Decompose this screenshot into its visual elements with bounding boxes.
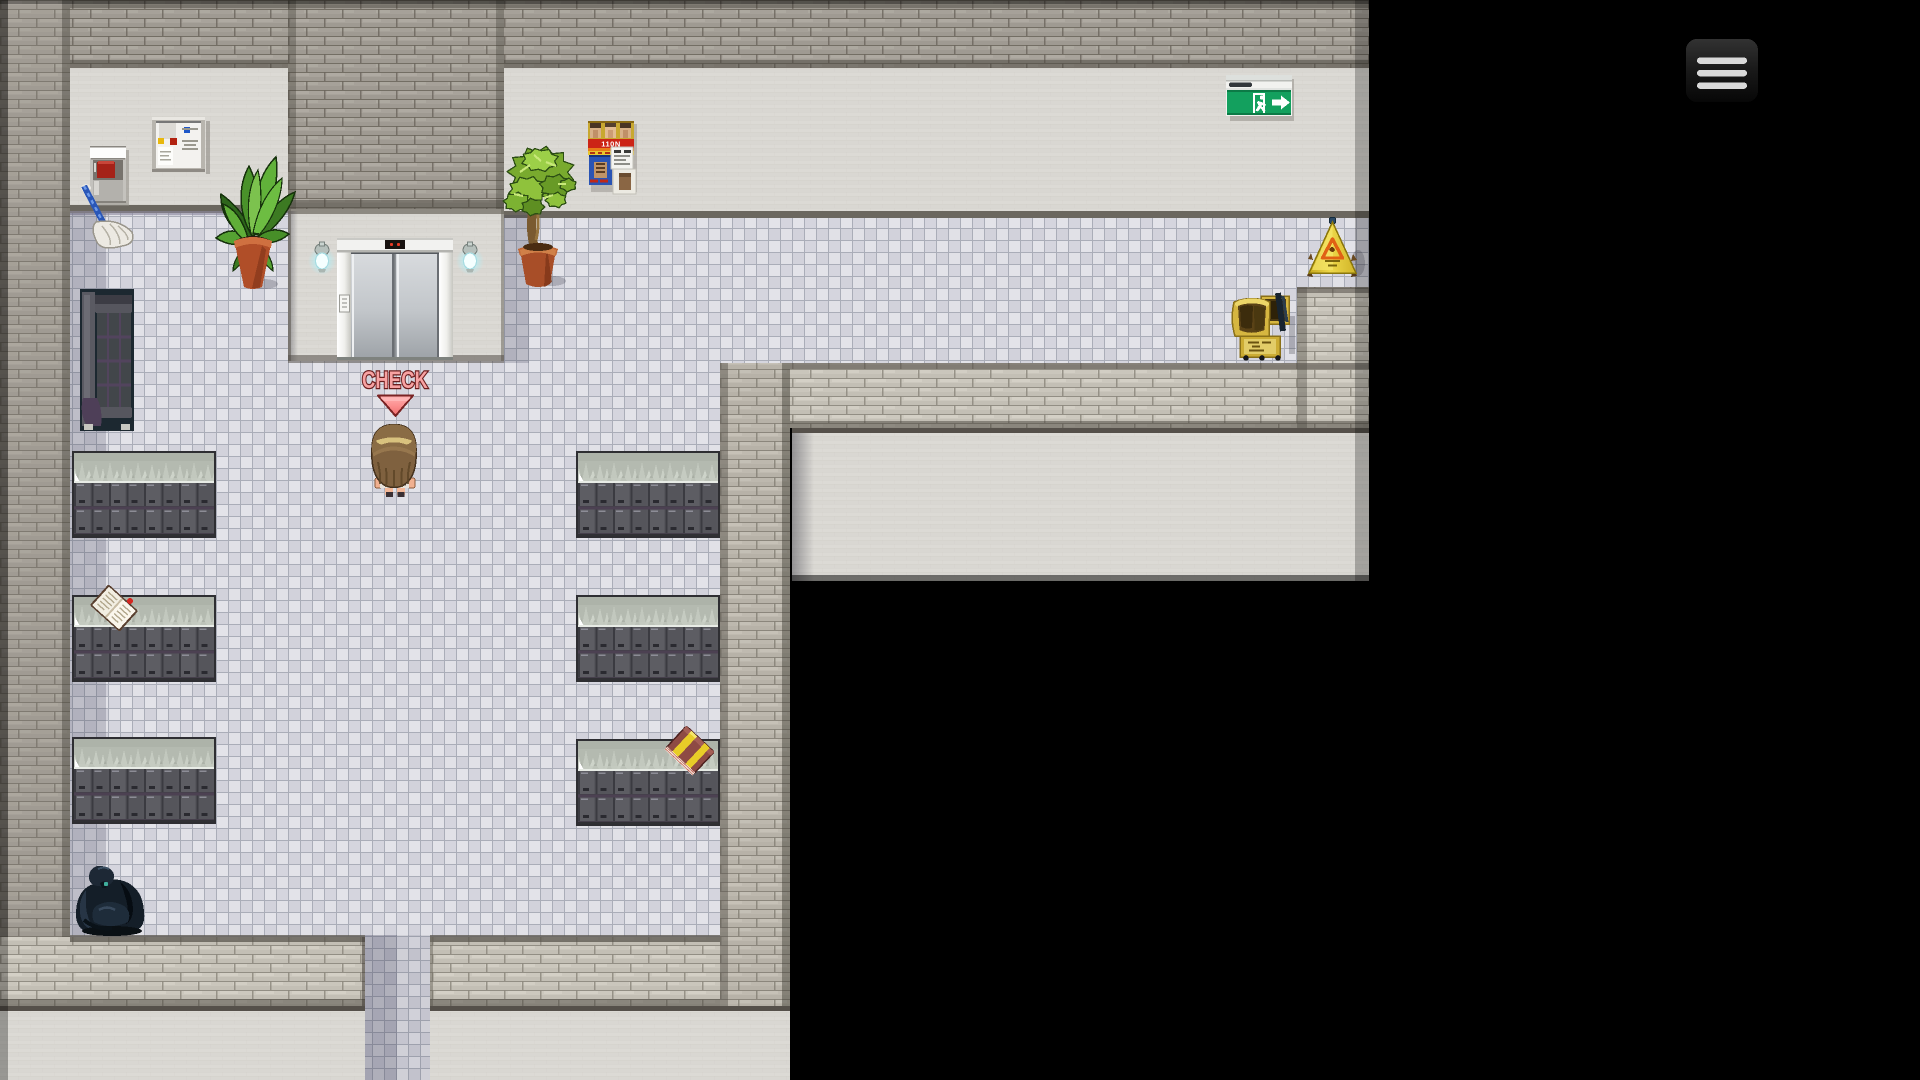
svg-text:CHECK: CHECK — [362, 367, 428, 394]
